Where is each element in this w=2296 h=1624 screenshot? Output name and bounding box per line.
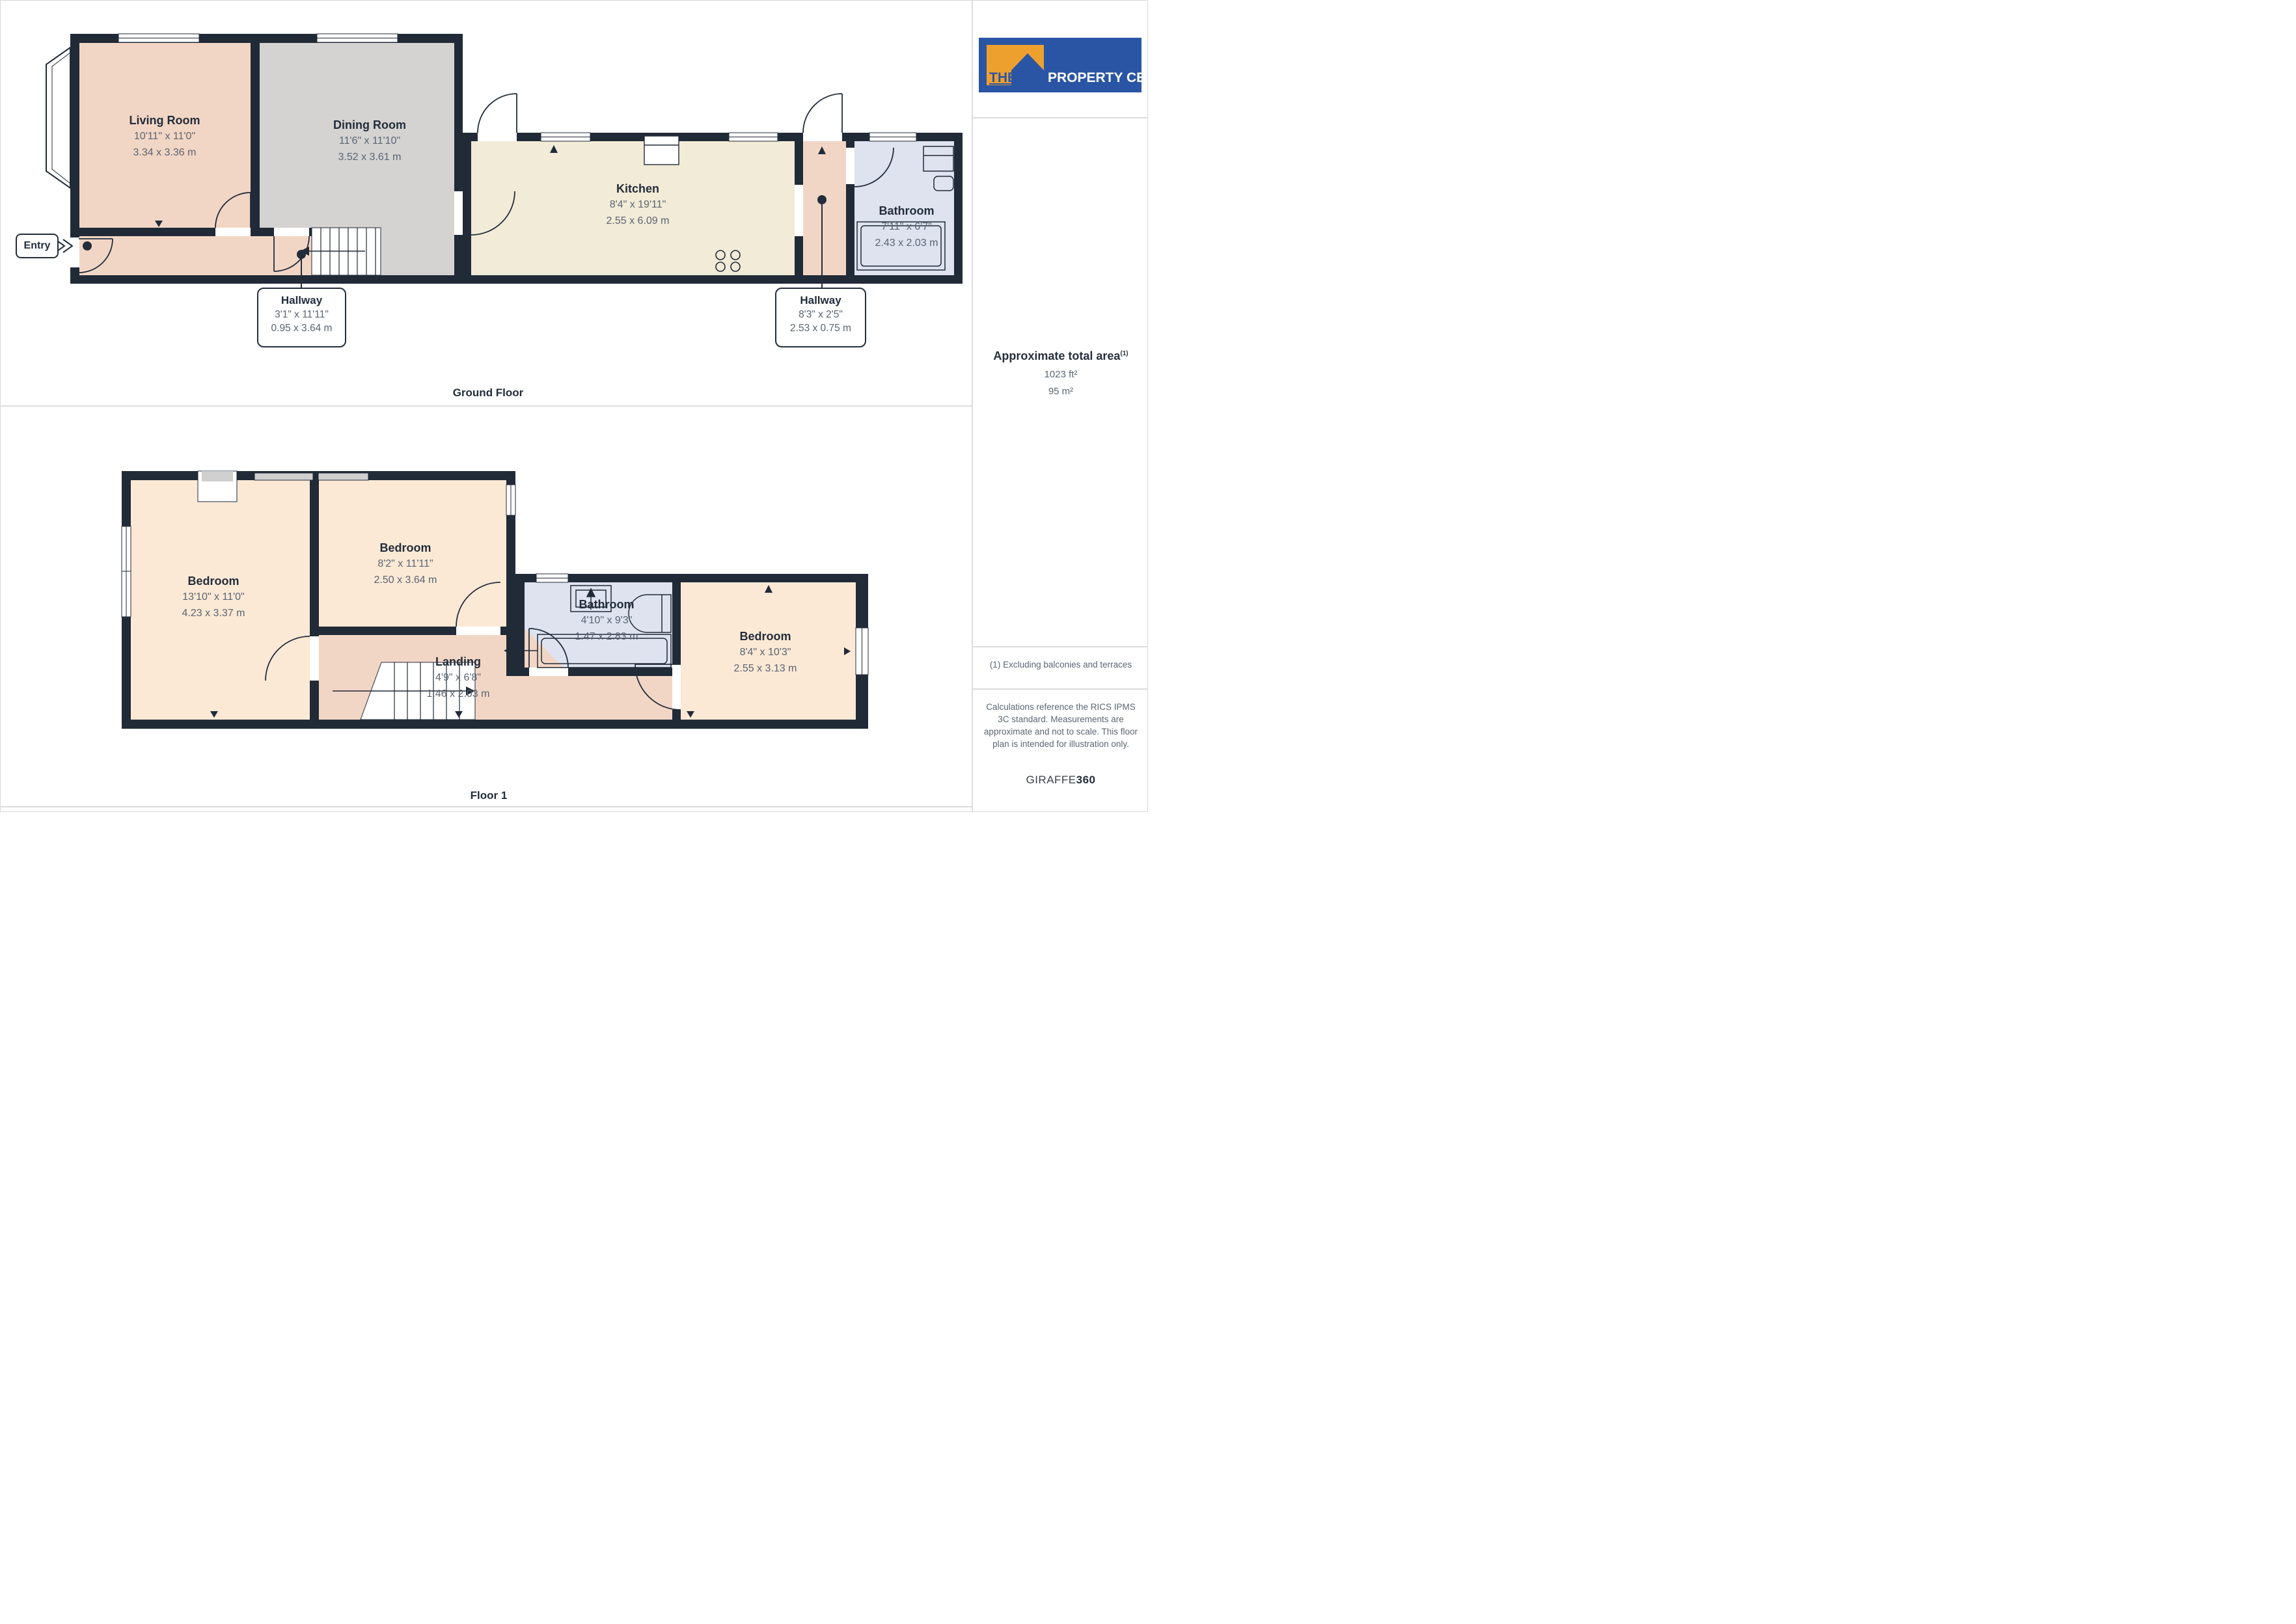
total-area-footnote-ref: (1) bbox=[1120, 350, 1128, 357]
entry-dot bbox=[83, 241, 92, 250]
property-centre-logo: THE PROPERTY CENTRE bbox=[979, 38, 1141, 92]
logo-graphic: THE PROPERTY CENTRE bbox=[979, 38, 1141, 92]
room-bathroom bbox=[854, 141, 954, 275]
hallway1-dot bbox=[297, 250, 306, 259]
room-dining bbox=[260, 43, 454, 228]
floorplan-canvas: Living Room 10'11" x 11'0" 3.34 x 3.36 m… bbox=[0, 0, 1148, 812]
footnote-exclusions: (1) Excluding balconies and terraces bbox=[976, 660, 1145, 670]
logo-the-text: THE bbox=[989, 70, 1017, 85]
entry-callout: Entry bbox=[16, 234, 59, 258]
credit-suffix: 360 bbox=[1076, 774, 1096, 786]
floor-section-divider bbox=[1, 806, 972, 807]
floor-section-divider bbox=[1, 405, 972, 407]
door-opening bbox=[70, 237, 79, 267]
door-opening bbox=[672, 664, 681, 710]
sidebar-cell-divider bbox=[973, 646, 1148, 647]
room-dims-metric: 0.95 x 3.64 m bbox=[258, 321, 345, 335]
total-area-m: 95 m² bbox=[973, 386, 1148, 397]
side-door-arc bbox=[478, 94, 517, 133]
room-bedroom-3 bbox=[681, 582, 856, 720]
kitchen-sink bbox=[644, 136, 679, 165]
room-name: Hallway bbox=[258, 293, 345, 308]
info-sidebar: THE PROPERTY CENTRE Approximate total ar… bbox=[973, 1, 1148, 812]
door-opening bbox=[215, 228, 251, 236]
hallway2-dot bbox=[817, 195, 827, 204]
total-area-title: Approximate total area(1) bbox=[973, 349, 1148, 363]
room-kitchen bbox=[471, 141, 795, 275]
first-floor-plan bbox=[122, 471, 868, 729]
door-opening bbox=[529, 668, 568, 676]
sidebar-cell-divider bbox=[973, 117, 1148, 118]
room-bedroom-1 bbox=[131, 480, 310, 720]
door-opening bbox=[456, 627, 500, 635]
hallway-callout-2: Hallway 8'3" x 2'5" 2.53 x 0.75 m bbox=[775, 288, 866, 347]
door-opening bbox=[454, 191, 463, 235]
ground-floor-label: Ground Floor bbox=[417, 386, 560, 399]
credit-name: GIRAFFE bbox=[1026, 774, 1076, 786]
door-opening bbox=[803, 133, 842, 141]
sidebar-cell-divider bbox=[973, 688, 1148, 690]
door-opening bbox=[846, 148, 854, 184]
total-area-block: Approximate total area(1) 1023 ft² 95 m² bbox=[973, 349, 1148, 397]
room-dims-metric: 2.53 x 0.75 m bbox=[776, 321, 865, 335]
ground-floor-plan bbox=[46, 34, 963, 290]
floor-1-label: Floor 1 bbox=[417, 789, 560, 802]
back-door-arc bbox=[803, 94, 842, 133]
door-opening bbox=[310, 636, 319, 681]
room-living bbox=[79, 43, 251, 228]
room-hallway bbox=[79, 236, 312, 275]
room-hallway-2 bbox=[803, 141, 846, 275]
hallway-callout-1: Hallway 3'1" x 11'11" 0.95 x 3.64 m bbox=[257, 288, 346, 347]
door-opening bbox=[795, 185, 803, 236]
room-dims-imperial: 8'3" x 2'5" bbox=[776, 308, 865, 321]
disclaimer-text: Calculations reference the RICS IPMS 3C … bbox=[983, 701, 1139, 750]
logo-rest-text: PROPERTY CENTRE bbox=[1048, 70, 1141, 85]
door-opening bbox=[274, 228, 309, 236]
room-name: Hallway bbox=[776, 293, 865, 308]
room-corridor bbox=[506, 676, 672, 720]
total-area-ft: 1023 ft² bbox=[973, 369, 1148, 380]
stairs bbox=[300, 228, 381, 275]
bay-window bbox=[46, 47, 70, 188]
room-dining bbox=[381, 228, 454, 275]
giraffe360-credit: GIRAFFE360 bbox=[973, 774, 1148, 787]
room-dims-imperial: 3'1" x 11'11" bbox=[258, 308, 345, 321]
door-opening bbox=[478, 133, 517, 141]
room-bedroom-2 bbox=[319, 480, 506, 627]
total-area-title-text: Approximate total area bbox=[993, 349, 1120, 362]
